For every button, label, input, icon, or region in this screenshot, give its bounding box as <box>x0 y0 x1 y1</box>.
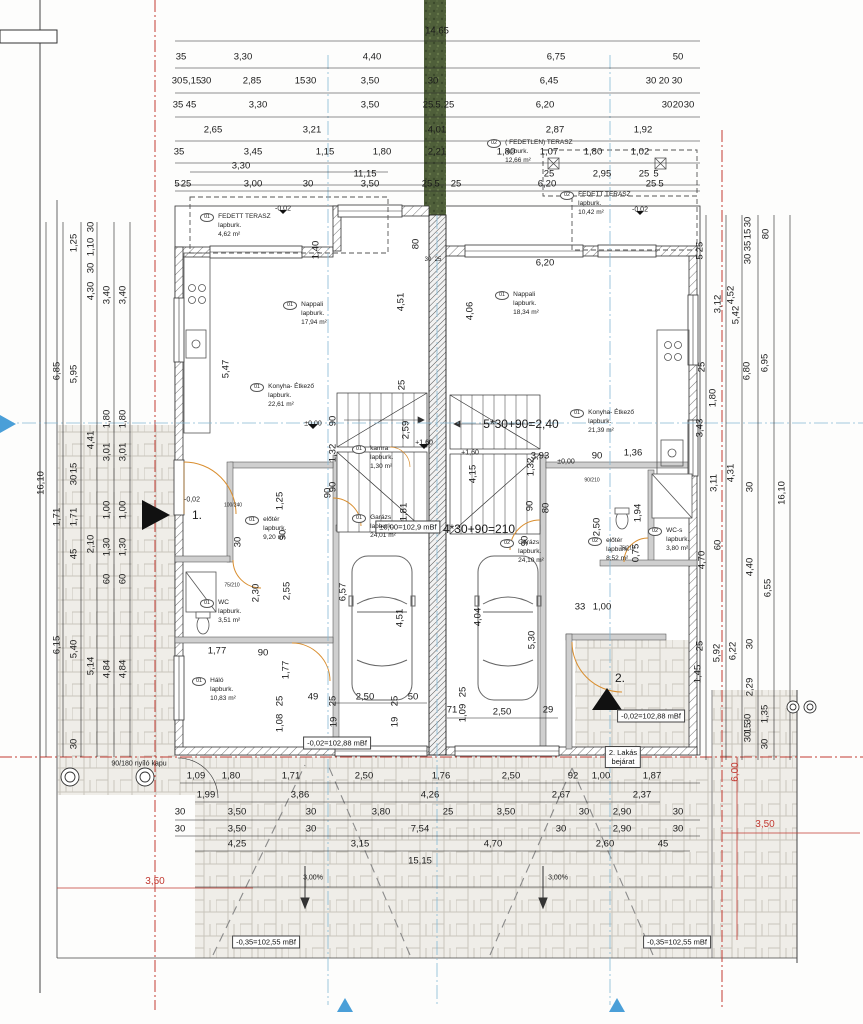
dim-label: 3,30 <box>249 100 268 110</box>
level-badge: -0,02=102,88 mBf <box>303 737 371 750</box>
dim-label-vertical: 15 <box>743 229 753 240</box>
dim-label: 49 <box>308 692 319 702</box>
room-sub: lapburk. <box>505 147 572 156</box>
dim-label: 25 <box>451 179 462 189</box>
room-area: 9,20 m² <box>263 533 286 542</box>
dim-label: 3,50 <box>361 100 380 110</box>
room-label: 01Konyha- Étkezőlapburk.22,61 m² <box>250 382 314 409</box>
dim-label-vertical: 6,95 <box>760 354 770 373</box>
dim-label: 30 <box>201 76 212 86</box>
room-sub: lapburk. <box>268 391 314 400</box>
dim-label: 2,65 <box>204 125 223 135</box>
room-sub: lapburk. <box>210 685 236 694</box>
dim-label: 2,21 <box>428 147 447 157</box>
dim-label: 5,15 <box>183 76 202 86</box>
dim-label: 1,80 <box>373 147 392 157</box>
dim-label-vertical: 4,31 <box>726 464 736 483</box>
dim-label: 2,50 <box>355 771 374 781</box>
dim-label: 50 <box>673 52 684 62</box>
mark-label: 100/240 <box>224 504 242 509</box>
room-tag: 01 <box>495 291 509 300</box>
dim-label-vertical: 3,43 <box>695 419 705 438</box>
dim-label: 33 <box>575 602 586 612</box>
dim-label: 15,15 <box>408 856 432 866</box>
dim-label-vertical: 1,40 <box>311 241 321 260</box>
dim-label-vertical: 4,04 <box>473 608 483 627</box>
dim-label-vertical: 16,10 <box>36 471 46 495</box>
room-area: 24,10 m² <box>518 556 544 565</box>
room-label: 01WClapburk.3,51 m² <box>200 598 241 625</box>
dim-label-vertical: 30 <box>69 739 79 750</box>
dim-label: 1,36 <box>624 448 643 458</box>
dim-label-vertical: 80 <box>761 229 771 240</box>
dim-label-vertical: 1,09 <box>458 704 468 723</box>
dim-label: 1,80 <box>222 771 241 781</box>
room-tag: 01 <box>283 301 297 310</box>
dim-label: 3,21 <box>303 125 322 135</box>
mark-label: 2. <box>615 672 625 684</box>
room-sub: lapburk. <box>370 453 393 462</box>
room-label: 02előtérlapburk.8,52 m² <box>588 536 629 563</box>
dim-label: 30 <box>646 76 657 86</box>
dim-label-vertical: 5,30 <box>527 631 537 650</box>
dim-label: 4,01 <box>428 125 447 135</box>
dim-label: 25 <box>422 179 433 189</box>
dim-label-vertical: 6,80 <box>742 362 752 381</box>
dim-label: 4*30+90=210 <box>443 523 515 535</box>
room-tag: 01 <box>352 445 366 454</box>
dim-label-vertical: 45 <box>69 549 79 560</box>
dim-label-vertical: 2,29 <box>745 678 755 697</box>
dim-label-vertical: 2,50 <box>592 518 602 537</box>
room-name: Konyha- Étkező <box>588 408 634 417</box>
dim-label-vertical: 80 <box>411 239 421 250</box>
dim-label: 1,99 <box>197 790 216 800</box>
dim-label-vertical: 25 <box>390 696 400 707</box>
room-label: 01FEDETT TERASZlapburk.4,62 m² <box>200 212 271 239</box>
room-label: 02FEDETT TERASZlapburk.10,42 m² <box>560 190 631 217</box>
dim-label-vertical: 1,00 <box>102 501 112 520</box>
mark-label: +1,60 <box>415 440 433 447</box>
room-sub: lapburk. <box>218 607 241 616</box>
room-name: Garázs <box>370 513 396 522</box>
dim-label: 20 <box>673 100 684 110</box>
dim-label: 2,85 <box>243 76 262 86</box>
dim-label: 1,71 <box>282 771 301 781</box>
dim-label: 30 <box>556 824 567 834</box>
dim-label-vertical: 25 <box>697 362 707 373</box>
room-label: 01Garázslapburk.24,01 m² <box>352 513 396 540</box>
room-tag: 01 <box>192 677 206 686</box>
dim-label-vertical: 25 <box>328 696 338 707</box>
mark-label: 25 <box>435 257 442 263</box>
dim-label: 15 <box>295 76 306 86</box>
dim-label: 1,00 <box>592 771 611 781</box>
mark-label: 1. <box>192 509 202 521</box>
dim-label-vertical: 90 <box>323 488 333 499</box>
dim-label: 14,65 <box>425 26 449 36</box>
room-name: előtér <box>263 515 286 524</box>
dim-label: 25 <box>181 179 192 189</box>
room-label: 02( FEDETLEN) TERASZlapburk.12,66 m² <box>487 138 573 165</box>
dim-label-vertical: 6,55 <box>763 579 773 598</box>
dim-label: 2,90 <box>613 824 632 834</box>
dim-label-vertical: 1,30 <box>118 538 128 557</box>
dim-label-vertical: 2,55 <box>282 582 292 601</box>
dim-label: 5*30+90=2,40 <box>483 418 558 430</box>
dim-label: 6,75 <box>547 52 566 62</box>
dim-label-vertical: 1,80 <box>708 389 718 408</box>
room-sub: lapburk. <box>518 547 544 556</box>
room-area: 21,39 m² <box>588 426 634 435</box>
room-tag: 01 <box>352 514 366 523</box>
dim-label-vertical: 30 <box>69 475 79 486</box>
dim-label-vertical: 4,40 <box>745 558 755 577</box>
dim-label: 30 <box>306 807 317 817</box>
dim-label-vertical: 6,00 <box>731 762 741 781</box>
dim-label-vertical: 90 <box>328 416 338 427</box>
level-badge: -0,35=102,55 mBf <box>232 936 300 949</box>
dim-label-vertical: 5,95 <box>69 365 79 384</box>
dim-label-vertical: 3,12 <box>713 295 723 314</box>
dim-label: 2,50 <box>493 707 512 717</box>
dim-label-vertical: 1,10 <box>86 238 96 257</box>
dim-label: 1,02 <box>631 147 650 157</box>
dim-label-vertical: 1,32 <box>328 444 338 463</box>
dim-label-vertical: 1,25 <box>69 234 79 253</box>
room-tag: 02 <box>500 539 514 548</box>
dim-label: 1,15 <box>316 147 335 157</box>
dim-label-vertical: 30 <box>86 222 96 233</box>
dim-label-vertical: 4,15 <box>468 465 478 484</box>
dim-label-vertical: 6,57 <box>338 583 348 602</box>
room-area: 3,80 m² <box>666 544 689 553</box>
room-tag: 01 <box>570 409 584 418</box>
dim-label-vertical: 19 <box>390 717 400 728</box>
level-badge: -0,02=102,88 mBf <box>617 710 685 723</box>
dim-label-vertical: 2,59 <box>401 421 411 440</box>
dim-label-vertical: 35 <box>743 241 753 252</box>
dim-label: 3,50 <box>228 824 247 834</box>
dim-label-vertical: 5,40 <box>69 640 79 659</box>
dim-label: 3,50 <box>361 76 380 86</box>
dim-label-vertical: 4,84 <box>102 660 112 679</box>
dim-label-vertical: 5,14 <box>86 657 96 676</box>
room-name: ( FEDETLEN) TERASZ <box>505 138 572 147</box>
room-name: Nappali <box>513 290 539 299</box>
dim-label: 5 <box>435 100 440 110</box>
dim-label: 30 <box>428 76 439 86</box>
dim-label: 3,30 <box>232 161 251 171</box>
dim-label: 71 <box>447 705 458 715</box>
dim-label-vertical: 19 <box>329 717 339 728</box>
dim-label: 30 <box>684 100 695 110</box>
room-label: 02WC-slapburk.3,80 m² <box>648 526 689 553</box>
room-name: Garázs <box>518 538 544 547</box>
room-sub: lapburk. <box>263 524 286 533</box>
dim-label-vertical: 90 <box>525 501 535 512</box>
dim-label-vertical: 4,84 <box>118 660 128 679</box>
dim-label-vertical: 1,00 <box>118 501 128 520</box>
room-sub: lapburk. <box>301 309 327 318</box>
dim-label: 25 <box>646 179 657 189</box>
dim-label: 4,26 <box>421 790 440 800</box>
dim-label-vertical: 3,11 <box>709 474 719 492</box>
room-tag: 02 <box>560 191 574 200</box>
room-name: Háló <box>210 676 236 685</box>
room-label: 01Nappalilapburk.17,94 m² <box>283 300 327 327</box>
dim-label-vertical: 1,77 <box>281 661 291 680</box>
room-area: 12,66 m² <box>505 156 572 165</box>
room-label: 01Konyha- Étkezőlapburk.21,39 m² <box>570 408 634 435</box>
mark-label: 3,00% <box>548 875 568 882</box>
dim-label-vertical: 4,06 <box>465 302 475 321</box>
dim-label-vertical: 4,51 <box>395 609 405 628</box>
dim-label: 30 <box>579 807 590 817</box>
mark-label: 3,50 <box>145 877 164 887</box>
dim-label: 25 <box>443 807 454 817</box>
dim-label: 1,92 <box>634 125 653 135</box>
room-tag: 01 <box>250 383 264 392</box>
dim-label: 3,80 <box>372 807 391 817</box>
dim-label-vertical: 16,10 <box>777 481 787 505</box>
mark-label: -0,02 <box>275 206 291 213</box>
dim-label: 92 <box>568 771 579 781</box>
dim-label: 29 <box>543 705 554 715</box>
dim-label-vertical: 15 <box>69 463 79 474</box>
dim-label-vertical: 1,71 <box>52 508 62 527</box>
dim-label: 2,60 <box>596 839 615 849</box>
mark-label: -0,02 <box>632 207 648 214</box>
dim-label: 3,50 <box>497 807 516 817</box>
dim-label: 3,50 <box>361 179 380 189</box>
dim-label: 30 <box>303 179 314 189</box>
dim-label: 3,45 <box>244 147 263 157</box>
dim-label: 35 <box>176 52 187 62</box>
mark-label: 90/210 <box>584 479 599 484</box>
dim-label: 3,15 <box>351 839 370 849</box>
mark-label: 3,00% <box>303 875 323 882</box>
dim-label: 1,00 <box>593 602 612 612</box>
dim-label: 2,95 <box>593 169 612 179</box>
room-tag: 01 <box>200 213 214 222</box>
dim-label: 25 <box>423 100 434 110</box>
room-area: 18,34 m² <box>513 308 539 317</box>
dim-label: 2,87 <box>546 125 565 135</box>
dim-label-vertical: 1,71 <box>69 508 79 527</box>
room-tag: 01 <box>200 599 214 608</box>
room-label: 01előtérlapburk.9,20 m² <box>245 515 286 542</box>
room-sub: lapburk. <box>588 417 634 426</box>
dim-label: 30 <box>662 100 673 110</box>
dim-label: 5 <box>174 179 179 189</box>
dim-label-vertical: 80 <box>541 503 551 514</box>
dim-label-vertical: 4,52 <box>726 286 736 305</box>
mark-label: 30 <box>425 257 432 263</box>
dim-label-vertical: 1,30 <box>102 538 112 557</box>
room-area: 1,30 m² <box>370 462 393 471</box>
dim-label-vertical: 2,10 <box>86 535 96 554</box>
dim-label: 6,20 <box>536 100 555 110</box>
labels-layer: 14,65353,304,406,7550305,15302,8515303,5… <box>0 0 863 1024</box>
dim-label-vertical: 5,42 <box>731 306 741 325</box>
dim-label-vertical: 30 <box>743 732 753 743</box>
dim-label: 1,77 <box>208 646 227 656</box>
room-area: 8,52 m² <box>606 554 629 563</box>
room-area: 3,51 m² <box>218 616 241 625</box>
dim-label-vertical: 1,80 <box>102 410 112 429</box>
dim-label: 2,90 <box>613 807 632 817</box>
room-name: Konyha- Étkező <box>268 382 314 391</box>
dim-label-vertical: 5 <box>695 254 705 259</box>
mark-label: 3,50 <box>755 820 774 830</box>
room-label: 01Nappalilapburk.18,34 m² <box>495 290 539 317</box>
dim-label: 3,30 <box>234 52 253 62</box>
dim-label-vertical: 25 <box>695 641 705 652</box>
dim-label-vertical: 1,94 <box>633 504 643 523</box>
dim-label: 2,67 <box>552 790 571 800</box>
dim-label-vertical: 1,80 <box>118 410 128 429</box>
dim-label: 3,00 <box>244 179 263 189</box>
dim-label: 6,20 <box>536 258 555 268</box>
dim-label-vertical: 5,92 <box>712 644 722 663</box>
room-name: FEDETT TERASZ <box>578 190 631 199</box>
dim-label-vertical: 25 <box>458 687 468 698</box>
dim-label-vertical: 25 <box>275 696 285 707</box>
dim-label-vertical: 3,40 <box>102 286 112 305</box>
dim-label-vertical: 2,30 <box>251 584 261 603</box>
dim-label: 20 <box>659 76 670 86</box>
dim-label: 2,50 <box>502 771 521 781</box>
dim-label: 30 <box>306 76 317 86</box>
mark-label: 90/180 nyíló kapu <box>111 761 166 768</box>
dim-label: 4,70 <box>484 839 503 849</box>
dim-label: 90 <box>258 648 269 658</box>
dim-label: 1,80 <box>584 147 603 157</box>
dim-label-vertical: 1,35 <box>760 705 770 724</box>
dim-label-vertical: 4,41 <box>86 431 96 450</box>
dim-label-vertical: 60 <box>118 574 128 585</box>
dim-label-vertical: 30 <box>743 254 753 265</box>
dim-label: 30 <box>673 824 684 834</box>
dim-label: 3,86 <box>291 790 310 800</box>
floor-plan-canvas: 14,65353,304,406,7550305,15302,8515303,5… <box>0 0 863 1024</box>
room-label: 01Hálólapburk.10,83 m² <box>192 676 236 703</box>
dim-label-vertical: 1,08 <box>275 714 285 733</box>
room-sub: lapburk. <box>578 199 631 208</box>
mark-label: ±0,00 <box>304 421 321 428</box>
level-badge: 2. Lakás bejárat <box>605 746 641 768</box>
room-area: 4,62 m² <box>218 230 271 239</box>
room-tag: 01 <box>245 516 259 525</box>
dim-label: 30 <box>306 824 317 834</box>
dim-label-vertical: 1,32 <box>526 458 536 477</box>
dim-label: 30 <box>673 807 684 817</box>
dim-label: 25 <box>444 100 455 110</box>
mark-label: +1,60 <box>461 450 479 457</box>
room-sub: lapburk. <box>606 545 629 554</box>
dim-label: 90 <box>592 451 603 461</box>
dim-label: 1,09 <box>187 771 206 781</box>
room-area: 24,01 m² <box>370 531 396 540</box>
dim-label-vertical: 60 <box>102 574 112 585</box>
dim-label: 4,40 <box>363 52 382 62</box>
room-name: előtér <box>606 536 629 545</box>
dim-label: 3,50 <box>228 807 247 817</box>
dim-label-vertical: 30 <box>743 217 753 228</box>
room-sub: lapburk. <box>218 221 271 230</box>
room-sub: lapburk. <box>370 522 396 531</box>
dim-label: 30 <box>175 807 186 817</box>
dim-label: 5 <box>658 179 663 189</box>
dim-label-vertical: 30 <box>86 263 96 274</box>
dim-label-vertical: 5,47 <box>221 360 231 379</box>
room-area: 10,42 m² <box>578 208 631 217</box>
dim-label-vertical: 30 <box>233 537 243 548</box>
dim-label-vertical: 4,70 <box>697 551 707 570</box>
dim-label-vertical: 4,51 <box>396 293 406 312</box>
room-name: Nappali <box>301 300 327 309</box>
dim-label: 2,50 <box>356 692 375 702</box>
dim-label: 6,45 <box>540 76 559 86</box>
room-area: 10,83 m² <box>210 694 236 703</box>
dim-label-vertical: 6,15 <box>52 636 62 655</box>
dim-label: 50 <box>408 692 419 702</box>
dim-label: 30 <box>672 76 683 86</box>
dim-label-vertical: 60 <box>713 540 723 551</box>
room-label: 01kamralapburk.1,30 m² <box>352 444 393 471</box>
dim-label-vertical: 3,01 <box>102 443 112 462</box>
room-name: kamra <box>370 444 393 453</box>
room-name: WC <box>218 598 241 607</box>
room-area: 17,94 m² <box>301 318 327 327</box>
room-tag: 02 <box>487 139 501 148</box>
dim-label-vertical: 30 <box>745 482 755 493</box>
dim-label-vertical: 3,40 <box>118 286 128 305</box>
dim-label-vertical: 6,85 <box>52 362 62 381</box>
dim-label-vertical: 6,22 <box>728 642 738 661</box>
mark-label: -0,02 <box>184 497 200 504</box>
dim-label: 45 <box>186 100 197 110</box>
dim-label-vertical: 25 <box>695 242 705 253</box>
room-name: FEDETT TERASZ <box>218 212 271 221</box>
dim-label: 35 <box>173 100 184 110</box>
dim-label-vertical: 3,01 <box>118 443 128 462</box>
room-area: 22,61 m² <box>268 400 314 409</box>
dim-label: 35 <box>174 147 185 157</box>
dim-label: 45 <box>658 839 669 849</box>
room-name: WC-s <box>666 526 689 535</box>
room-tag: 02 <box>648 527 662 536</box>
dim-label-vertical: 30 <box>745 639 755 650</box>
dim-label-vertical: 25 <box>397 380 407 391</box>
dim-label-vertical: 4,30 <box>86 282 96 301</box>
level-badge: -0,35=102,55 mBf <box>643 936 711 949</box>
dim-label-vertical: 1,81 <box>399 503 409 522</box>
room-label: 02Garázslapburk.24,10 m² <box>500 538 544 565</box>
room-sub: lapburk. <box>513 299 539 308</box>
dim-label: 5 <box>434 179 439 189</box>
dim-label: 2,37 <box>633 790 652 800</box>
dim-label: 30 <box>175 824 186 834</box>
room-tag: 02 <box>588 537 602 546</box>
mark-label: 75/210 <box>224 584 239 589</box>
dim-label: 1,87 <box>643 771 662 781</box>
dim-label: 6,20 <box>538 179 557 189</box>
room-sub: lapburk. <box>666 535 689 544</box>
dim-label: 1,76 <box>432 771 451 781</box>
dim-label-vertical: 30 <box>760 739 770 750</box>
